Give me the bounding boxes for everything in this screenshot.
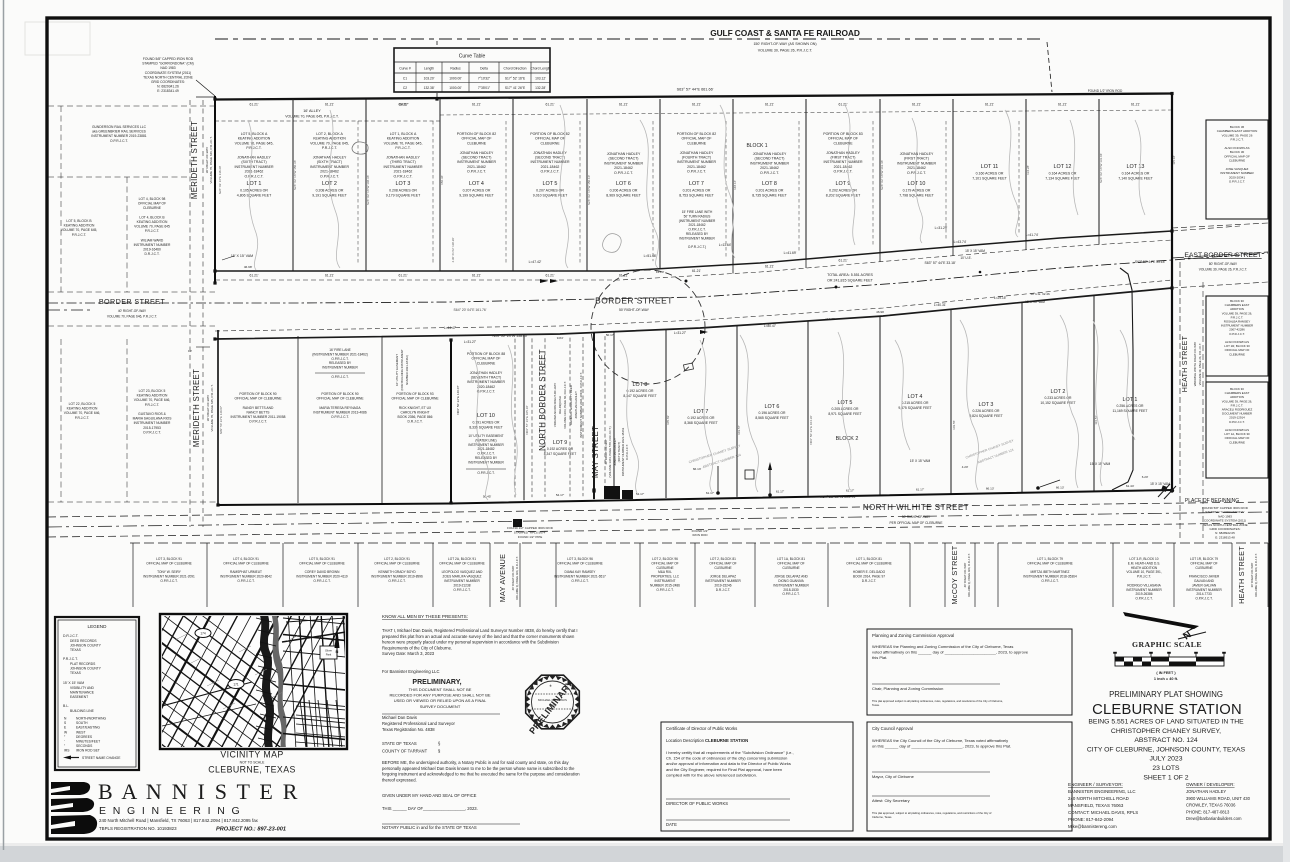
svg-text:2021-18462: 2021-18462: [467, 165, 486, 169]
svg-text:16' ALLEY: 16' ALLEY: [303, 109, 321, 113]
svg-text:(SECOND TRACT): (SECOND TRACT): [462, 156, 492, 160]
svg-text:10' UTILITY EASEMENT: 10' UTILITY EASEMENT: [468, 434, 503, 438]
svg-text:8,753 SQUARE FEET: 8,753 SQUARE FEET: [679, 194, 714, 198]
svg-text:LOT 1, BLOCK A: LOT 1, BLOCK A: [390, 132, 417, 136]
svg-text:Delta: Delta: [480, 67, 488, 71]
svg-text:E: 2318341.49: E: 2318341.49: [157, 89, 179, 93]
svg-text:INSTRUMENT NUMBER: INSTRUMENT NUMBER: [1126, 588, 1162, 592]
svg-text:GIVEN UNDER MY HAND AND SEAL O: GIVEN UNDER MY HAND AND SEAL OF OFFICE: [382, 793, 477, 798]
svg-text:GULF COAST & SANTA FE RAILROAD: GULF COAST & SANTA FE RAILROAD: [710, 28, 860, 38]
svg-text:CLEBURNE: CLEBURNE: [1229, 440, 1245, 444]
svg-text:LOT 2, BLOCK 81: LOT 2, BLOCK 81: [710, 557, 736, 561]
svg-text:LOT 5, BLOCK B: LOT 5, BLOCK B: [66, 219, 92, 223]
svg-text:O.P.R.J.C.T.: O.P.R.J.C.T.: [388, 579, 405, 583]
svg-text:2014-7733: 2014-7733: [1196, 592, 1211, 596]
svg-text:Curve Table: Curve Table: [459, 54, 486, 60]
svg-text:LOT 12: LOT 12: [1054, 164, 1072, 170]
svg-text:VISIBILITY AND: VISIBILITY AND: [70, 686, 95, 690]
svg-text:O.P.R.J.C.T.: O.P.R.J.C.T.: [249, 420, 267, 424]
svg-text:61.21': 61.21': [325, 103, 334, 107]
svg-text:Ch. 154 of the code of ordinan: Ch. 154 of the code of ordinances of the…: [666, 756, 787, 761]
svg-text:7°10'32": 7°10'32": [478, 77, 491, 81]
svg-text:0.201 ACRES OR: 0.201 ACRES OR: [683, 189, 711, 193]
svg-text:OR 241,815 SQUARE FEET: OR 241,815 SQUARE FEET: [827, 279, 874, 283]
svg-text:OFFICIAL MAP OF: OFFICIAL MAP OF: [651, 561, 678, 565]
svg-text:0.164 ACRES OR: 0.164 ACRES OR: [1049, 172, 1077, 176]
svg-text:LOT 23, BLOCK 5: LOT 23, BLOCK 5: [139, 389, 166, 393]
svg-text:8,971 SQUARE FEET: 8,971 SQUARE FEET: [828, 412, 861, 416]
svg-text:61.21': 61.21': [765, 103, 774, 107]
svg-text:O.P.R.J.C.T.: O.P.R.J.C.T.: [782, 592, 799, 596]
svg-text:(INSTRUMENT NUMBER 2021-18462): (INSTRUMENT NUMBER 2021-18462): [312, 352, 368, 356]
svg-text:O.P.R.J.C.T.: O.P.R.J.C.T.: [1229, 180, 1245, 184]
svg-text:JONATHAN HADLEY: JONATHAN HADLEY: [470, 371, 503, 375]
svg-text:Chord Direction: Chord Direction: [504, 67, 527, 71]
svg-text:Michael Dan Davis: Michael Dan Davis: [382, 715, 417, 720]
svg-text:9,191 SQUARE FEET: 9,191 SQUARE FEET: [312, 194, 347, 198]
svg-text:VOLUME 70, PAGE 646,: VOLUME 70, PAGE 646,: [134, 398, 171, 402]
svg-text:EAST/EASTING: EAST/EASTING: [76, 726, 100, 730]
svg-text:TEXAS: TEXAS: [70, 648, 82, 652]
svg-text:P.R.J.C.T.: P.R.J.C.T.: [322, 146, 338, 150]
svg-text:MIRTZA IBETH MARTINEZ: MIRTZA IBETH MARTINEZ: [1030, 570, 1069, 574]
svg-text:E: 2318913.48: E: 2318913.48: [1215, 535, 1235, 539]
svg-text:LOT 4, BLOCK 98: LOT 4, BLOCK 98: [139, 197, 166, 201]
svg-text:10' UTILITY EASEMENT: 10' UTILITY EASEMENT: [395, 354, 399, 386]
svg-text:61.21': 61.21': [472, 274, 481, 278]
svg-text:8,969 SQUARE FEET: 8,969 SQUARE FEET: [606, 194, 641, 198]
svg-text:50' RIGHT-OF-WAY: 50' RIGHT-OF-WAY: [902, 515, 931, 519]
svg-text:KNOW ALL MEN BY THESE PRESENTS: KNOW ALL MEN BY THESE PRESENTS:: [382, 614, 468, 619]
svg-text:4,806 SQUARE FEET: 4,806 SQUARE FEET: [237, 194, 272, 198]
svg-text:RAMSPHAT URMEUT: RAMSPHAT URMEUT: [230, 570, 262, 574]
svg-text:PROJECT NO.: 897-23-001: PROJECT NO.: 897-23-001: [216, 827, 286, 833]
svg-text:8,735 SQUARE FEET: 8,735 SQUARE FEET: [752, 194, 787, 198]
svg-text:RELEASED BY: RELEASED BY: [686, 232, 709, 236]
svg-text:JONATHAN HADLEY: JONATHAN HADLEY: [460, 151, 494, 155]
svg-text:0.192 ACRES OR: 0.192 ACRES OR: [627, 389, 655, 393]
svg-text:DIANA KAY RAMSEY: DIANA KAY RAMSEY: [565, 570, 597, 574]
svg-text:GUNDERSON RAIL SERVICES LLC: GUNDERSON RAIL SERVICES LLC: [92, 125, 147, 129]
svg-text:61.21': 61.21': [692, 103, 701, 107]
svg-text:LOT 10: LOT 10: [908, 181, 926, 187]
svg-text:hereon were properly placed un: hereon were properly placed under my per…: [382, 640, 559, 645]
svg-text:INSTRUMENT NUMBER: INSTRUMENT NUMBER: [444, 579, 480, 583]
svg-text:46.98': 46.98': [244, 265, 253, 269]
svg-text:61.21': 61.21': [619, 103, 628, 107]
svg-text:D.R.J.C.T.: D.R.J.C.T.: [716, 588, 731, 592]
svg-text:S63° 57' 44"E 33.18': S63° 57' 44"E 33.18': [1135, 260, 1166, 264]
svg-text:SHEET 1 OF 2: SHEET 1 OF 2: [1143, 774, 1188, 781]
svg-text:OFFICIAL MAP OF: OFFICIAL MAP OF: [535, 137, 565, 141]
svg-text:LEGEND: LEGEND: [88, 624, 108, 629]
svg-text:GALVAN AND: GALVAN AND: [1194, 579, 1215, 583]
svg-text:WHEREAS the City Council of th: WHEREAS the City Council of the City of …: [872, 738, 1008, 743]
svg-text:OFFICIAL MAP OF CLEBURNE: OFFICIAL MAP OF CLEBURNE: [223, 561, 269, 565]
svg-text:S17° 52' 16"E: S17° 52' 16"E: [505, 77, 526, 81]
svg-text:O.P.R.J.C.T.: O.P.R.J.C.T.: [331, 415, 349, 419]
svg-text:KEATING ADDITION: KEATING ADDITION: [387, 137, 420, 141]
svg-text:LOT 10: LOT 10: [477, 413, 495, 419]
svg-text:on this ______ day of ________: on this ______ day of __________________…: [872, 743, 1011, 748]
svg-text:FOUND 1/2" IRON ROD: FOUND 1/2" IRON ROD: [1088, 89, 1123, 93]
svg-text:LOT 5, BLOCK 91: LOT 5, BLOCK 91: [309, 557, 335, 561]
svg-text:2021-18462: 2021-18462: [907, 166, 926, 170]
svg-text:1000.00': 1000.00': [449, 77, 462, 81]
svg-text:S26° 02' 16"W 148.36': S26° 02' 16"W 148.36': [366, 175, 370, 205]
svg-text:PRELIMINARY,: PRELIMINARY,: [412, 679, 461, 686]
svg-text:S63° 57' 44"E 33.18': S63° 57' 44"E 33.18': [924, 261, 955, 265]
svg-text:NUMBER 2021-18462): NUMBER 2021-18462): [405, 355, 409, 385]
svg-text:Chord Length: Chord Length: [531, 67, 551, 71]
svg-text:TONY W. SEIRY: TONY W. SEIRY: [157, 570, 182, 574]
svg-text:D.R.J.C.T.: D.R.J.C.T.: [144, 252, 159, 256]
svg-text:L=31.27': L=31.27': [674, 331, 687, 335]
svg-text:P.R.J.C.T.: P.R.J.C.T.: [75, 416, 89, 420]
svg-text:9,199 SQUARE FEET: 9,199 SQUARE FEET: [459, 194, 494, 198]
svg-text:0.256 ACRES OR: 0.256 ACRES OR: [1117, 404, 1145, 408]
svg-text:SOUTH: SOUTH: [76, 721, 88, 725]
svg-text:S64° 20' 04"E 161.76': S64° 20' 04"E 161.76': [454, 308, 487, 312]
svg-text:2018-1530: 2018-1530: [783, 588, 798, 592]
svg-text:54.17': 54.17': [556, 493, 565, 497]
svg-text:DEED RECORDS: DEED RECORDS: [70, 639, 97, 643]
svg-text:S17° 41' 26"E: S17° 41' 26"E: [505, 86, 526, 90]
svg-text:O.P.R.J.C.T.: O.P.R.J.C.T.: [688, 228, 705, 232]
svg-text:Cleburne, Texas.: Cleburne, Texas.: [872, 815, 892, 819]
svg-text:THAT I, Michael Dan Davis, Reg: THAT I, Michael Dan Davis, Registered Pr…: [382, 628, 578, 633]
svg-text:BANNISTER ENGINEERING, LLC: BANNISTER ENGINEERING, LLC: [1068, 789, 1136, 794]
svg-text:P.R.J.C.T.: P.R.J.C.T.: [246, 146, 262, 150]
svg-text:LOT 11: LOT 11: [981, 164, 998, 170]
svg-text:GRID COORDINATES:: GRID COORDINATES:: [151, 80, 185, 84]
svg-text:LOT 4: LOT 4: [469, 181, 484, 187]
svg-text:O.P.R.J.C.T.: O.P.R.J.C.T.: [143, 430, 161, 434]
svg-text:RECORDED FOR ANY PURPOSE AND S: RECORDED FOR ANY PURPOSE AND SHALL NOT B…: [389, 693, 490, 698]
svg-text:M&A RXL: M&A RXL: [658, 570, 672, 574]
svg-text:WHEREAS the Planning and Zonin: WHEREAS the Planning and Zoning Commissi…: [872, 644, 1013, 649]
svg-text:LOT 8: LOT 8: [762, 181, 777, 187]
svg-text:OFFICIAL MAP OF CLEBURNE: OFFICIAL MAP OF CLEBURNE: [439, 561, 485, 565]
svg-text:PORTION OF BLOCK 82: PORTION OF BLOCK 82: [457, 132, 496, 136]
svg-text:2021-18462: 2021-18462: [760, 166, 779, 170]
svg-text:CLEBURNE: CLEBURNE: [1229, 352, 1245, 356]
svg-text:LOT 2, BLOCK A: LOT 2, BLOCK A: [316, 132, 343, 136]
svg-text:(SIXTH TRACT): (SIXTH TRACT): [241, 160, 266, 164]
svg-text:IRON ROD SET: IRON ROD SET: [76, 749, 100, 753]
svg-text:BORDER STREET: BORDER STREET: [595, 296, 673, 306]
svg-text:KEATING ADDITION: KEATING ADDITION: [137, 394, 168, 398]
svg-text:LOT 1, BLOCK 79: LOT 1, BLOCK 79: [1037, 557, 1063, 561]
svg-text:PHONE: 817-842-2094: PHONE: 817-842-2094: [1068, 817, 1114, 822]
svg-text:S63° 57' 44"E 661.66': S63° 57' 44"E 661.66': [677, 88, 714, 92]
svg-text:148.16': 148.16': [733, 180, 737, 190]
svg-text:Radius: Radius: [450, 67, 461, 71]
svg-text:O.P.R.J.C.T.: O.P.R.J.C.T.: [477, 471, 494, 475]
svg-text:JONATHAN HADLEY: JONATHAN HADLEY: [680, 151, 714, 155]
svg-text:61.21': 61.21': [839, 103, 848, 107]
svg-text:(SECOND TRACT): (SECOND TRACT): [609, 157, 639, 161]
svg-text:L=41.69': L=41.69': [784, 251, 797, 255]
svg-text:66.13': 66.13': [693, 467, 702, 471]
svg-text:Texas Registration No. 4838: Texas Registration No. 4838: [382, 727, 435, 732]
svg-text:O.P.R.J.C.T.: O.P.R.J.C.T.: [1135, 597, 1152, 601]
svg-text:COUNTY OF TARRANT: COUNTY OF TARRANT: [382, 749, 428, 754]
svg-text:PORTION OF BLOCK 83: PORTION OF BLOCK 83: [823, 132, 862, 136]
svg-text:(VOLUME 1363, PAGE 570, D.R.J.: (VOLUME 1363, PAGE 570, D.R.J.C.T.): [608, 426, 612, 477]
svg-text:P.R.J.C.T.: P.R.J.C.T.: [145, 403, 159, 407]
svg-text:INSTRUMENT: INSTRUMENT: [655, 579, 676, 583]
svg-text:6.20': 6.20': [1142, 475, 1149, 479]
svg-text:61.44': 61.44': [1126, 484, 1135, 488]
svg-text:2021-18462: 2021-18462: [688, 223, 705, 227]
svg-text:GENERAL WARRANTY DEED: GENERAL WARRANTY DEED: [569, 385, 573, 425]
svg-text:61.21': 61.21': [985, 103, 994, 107]
svg-text:City Council Approval: City Council Approval: [872, 726, 913, 731]
svg-text:O.P.R.J.C.T.: O.P.R.J.C.T.: [625, 444, 629, 460]
svg-text:9,824 SQUARE FEET: 9,824 SQUARE FEET: [969, 414, 1002, 418]
svg-text:N: N: [336, 649, 339, 654]
svg-text:LOT 4: LOT 4: [908, 394, 923, 400]
svg-text:INSTRUMENT NUMBER: INSTRUMENT NUMBER: [679, 236, 715, 240]
svg-text:9,010 SQUARE FEET: 9,010 SQUARE FEET: [533, 194, 568, 198]
svg-text:3900 WILLIAMS ROAD, UNIT 430: 3900 WILLIAMS ROAD, UNIT 430: [1186, 796, 1251, 801]
svg-text:INSTRUMENT NUMBER: INSTRUMENT NUMBER: [897, 161, 936, 165]
svg-text:LOT 4, BLOCK B: LOT 4, BLOCK B: [139, 215, 165, 219]
svg-text:2020-18462: 2020-18462: [477, 385, 495, 389]
svg-text:JONATHAN HADLEY: JONATHAN HADLEY: [237, 156, 271, 160]
svg-text:this Plat.: this Plat.: [872, 655, 887, 660]
svg-text:PORTION OF BLOCK 93: PORTION OF BLOCK 93: [396, 392, 433, 396]
svg-text:OFFICIAL MAP OF: OFFICIAL MAP OF: [828, 137, 858, 141]
svg-text:NORTH WILHITE STREET: NORTH WILHITE STREET: [863, 503, 969, 512]
svg-text:50.45': 50.45': [483, 494, 492, 498]
svg-text:INSTRUMENT NUMBER 2020-8642: INSTRUMENT NUMBER 2020-8642: [220, 575, 272, 579]
svg-text:INSTRUMENT NUMBER 2021-18461,: INSTRUMENT NUMBER 2021-18461, O.P.R.J.C.…: [579, 372, 583, 438]
svg-text:For Bannister Engineering LLC: For Bannister Engineering LLC: [382, 669, 440, 674]
svg-text:L=40.31': L=40.31': [934, 303, 947, 307]
svg-text:2021-18462: 2021-18462: [834, 165, 853, 169]
svg-text:Attest: City Secretary: Attest: City Secretary: [872, 798, 910, 803]
svg-text:INSTRUMENT NUMBER 2013-4086: INSTRUMENT NUMBER 2013-4086: [313, 410, 367, 414]
svg-text:HOMER E. DELGADO: HOMER E. DELGADO: [853, 570, 886, 574]
svg-text:STAMPED "RPLS 5674": STAMPED "RPLS 5674": [514, 530, 547, 534]
svg-text:8,565 SQUARE FEET: 8,565 SQUARE FEET: [755, 416, 788, 420]
svg-text:OFFICIAL MAP OF CLEBURNE: OFFICIAL MAP OF CLEBURNE: [146, 561, 192, 565]
svg-text:LOT 3-R, BLOCK 10: LOT 3-R, BLOCK 10: [1129, 557, 1158, 561]
svg-text:OFFICIAL MAP OF CLEBURNE: OFFICIAL MAP OF CLEBURNE: [1027, 561, 1073, 565]
svg-text:VOLUME 70, PAGE 646,: VOLUME 70, PAGE 646,: [64, 411, 101, 415]
svg-text:N09° 57' 16"E 105.18': N09° 57' 16"E 105.18': [525, 405, 529, 435]
svg-text:BEING 5.551 ACRES OF LAND SITU: BEING 5.551 ACRES OF LAND SITUATED IN TH…: [1088, 719, 1244, 726]
svg-text:0.205 ACRES OR: 0.205 ACRES OR: [832, 407, 860, 411]
svg-text:4.30' 61.52' 138.20': 4.30' 61.52' 138.20': [451, 237, 455, 262]
svg-text:61.17': 61.17': [776, 490, 785, 494]
svg-text:JONATHAN HADLEY: JONATHAN HADLEY: [607, 152, 641, 156]
svg-text:2021-18462: 2021-18462: [614, 166, 633, 170]
svg-text:(INSTRUMENT NUMBER: (INSTRUMENT NUMBER: [679, 219, 716, 223]
svg-text:TEXAS NORTH CENTRAL ZONE: TEXAS NORTH CENTRAL ZONE: [143, 75, 193, 79]
svg-text:LOT 4, BLOCK 91: LOT 4, BLOCK 91: [233, 557, 259, 561]
svg-text:Curve #: Curve #: [399, 67, 411, 71]
svg-text:FRANCISCO JAVIER: FRANCISCO JAVIER: [1189, 575, 1220, 579]
svg-text:and/or approval of information: and/or approval of information and data …: [666, 761, 791, 766]
svg-text:240 North Mitchell Road | Man: 240 North Mitchell Road | Mansfield, TX …: [99, 818, 259, 823]
svg-text:PORTION OF BLOCK 90: PORTION OF BLOCK 90: [321, 392, 358, 396]
svg-text:DEGREES: DEGREES: [76, 735, 93, 739]
svg-text:N26° 02' 16"E 138.20': N26° 02' 16"E 138.20': [218, 165, 222, 194]
svg-text:LOT 2: LOT 2: [1051, 389, 1066, 395]
svg-text:D.R.J.C.T.: D.R.J.C.T.: [862, 579, 877, 583]
svg-text:INSTRUMENT NUMBER: INSTRUMENT NUMBER: [134, 243, 171, 247]
svg-text:FOUND 1/2" CAPPED IRON ROD: FOUND 1/2" CAPPED IRON ROD: [507, 526, 554, 530]
svg-text:L=29.15': L=29.15': [994, 296, 1007, 300]
svg-text:CLEBURNE: CLEBURNE: [687, 141, 707, 145]
svg-text:LOT 7: LOT 7: [689, 181, 704, 187]
svg-text:LOT 8: LOT 8: [633, 382, 648, 388]
svg-text:LOT 1, BLOCK 81: LOT 1, BLOCK 81: [856, 557, 882, 561]
svg-text:HEATH STREET: HEATH STREET: [1182, 335, 1189, 392]
svg-text:VIRGINIA NIXON RIGHT-OF-WAY: VIRGINIA NIXON RIGHT-OF-WAY: [553, 383, 557, 427]
svg-text:INSTRUMENT NUMBER: INSTRUMENT NUMBER: [823, 160, 862, 164]
svg-text:LOT 1: LOT 1: [247, 181, 262, 187]
svg-text:NAD 1983: NAD 1983: [160, 66, 175, 70]
svg-text:VOLUME 1363, PAGE 60, D.R.J.C.: VOLUME 1363, PAGE 60, D.R.J.C.T.: [563, 381, 567, 429]
svg-text:WILIAM WARD: WILIAM WARD: [141, 238, 164, 242]
svg-text:Survey Date: March 3, 2023: Survey Date: March 3, 2023: [382, 651, 435, 656]
svg-text:S26° 02' 16"W 150.36': S26° 02' 16"W 150.36': [293, 160, 297, 190]
svg-text:CLEBURNE: CLEBURNE: [833, 141, 853, 145]
svg-text:O.P.R.J.C.T.: O.P.R.J.C.T.: [614, 171, 633, 175]
svg-text:LOT 3: LOT 3: [396, 181, 411, 187]
svg-text:CLEBURNE: CLEBURNE: [467, 141, 487, 145]
svg-text:O.P.R.J.C.T.: O.P.R.J.C.T.: [394, 174, 413, 178]
svg-text:LOT 1: LOT 1: [1123, 397, 1138, 403]
svg-text:(FOURTH TRACT): (FOURTH TRACT): [682, 156, 711, 160]
svg-text:Planning and Zoning Commission: Planning and Zoning Commission Approval: [872, 633, 954, 638]
svg-text:O.P.R.J.C.T.: O.P.R.J.C.T.: [541, 170, 560, 174]
svg-text:0.207 ACRES OR: 0.207 ACRES OR: [463, 189, 491, 193]
svg-text:NANCY BETTS: NANCY BETTS: [246, 410, 270, 414]
svg-text:O.P.R.J.C.T.: O.P.R.J.C.T.: [160, 579, 177, 583]
svg-text:BUILDING LINE: BUILDING LINE: [70, 709, 95, 713]
svg-text:JONATHAN HADLEY: JONATHAN HADLEY: [313, 156, 347, 160]
svg-text:2021-18462: 2021-18462: [394, 170, 413, 174]
svg-text:10,152 SQUARE FEET: 10,152 SQUARE FEET: [1040, 401, 1075, 405]
svg-text:(SIXTH TRACT): (SIXTH TRACT): [317, 160, 342, 164]
svg-text:O.P.R.J.C.T.: O.P.R.J.C.T.: [331, 357, 348, 361]
svg-text:MARIA TERESA REYNAGA: MARIA TERESA REYNAGA: [319, 406, 361, 410]
svg-text:LOT 2A, BLOCK 91: LOT 2A, BLOCK 91: [448, 557, 476, 561]
svg-text:(FIRST TRACT): (FIRST TRACT): [831, 156, 856, 160]
svg-text:ENGINEER / SURVEYOR:: ENGINEER / SURVEYOR:: [1068, 782, 1123, 787]
svg-text:NORTH BORDER STREET: NORTH BORDER STREET: [538, 349, 547, 451]
svg-text:0.201 ACRES OR: 0.201 ACRES OR: [756, 189, 784, 193]
svg-text:LOT 6: LOT 6: [765, 404, 780, 410]
svg-text:OFFICIAL MAP OF CLEBURNE: OFFICIAL MAP OF CLEBURNE: [846, 561, 892, 565]
svg-text:VOLUME 70, PAGE 645,: VOLUME 70, PAGE 645,: [61, 228, 98, 232]
svg-text:103.20': 103.20': [424, 77, 435, 81]
svg-text:105.82': 105.82': [666, 415, 670, 425]
svg-text:D.R.J.C.T.: D.R.J.C.T.: [63, 634, 79, 638]
svg-text:61.21': 61.21': [765, 265, 774, 269]
svg-text:CLEBURNE: CLEBURNE: [1229, 159, 1245, 163]
svg-text:Drew@barbarianbuilders.com: Drew@barbarianbuilders.com: [1186, 816, 1242, 821]
svg-text:0.192 ACRES OR: 0.192 ACRES OR: [547, 447, 574, 451]
svg-text:Park: Park: [326, 653, 332, 657]
svg-text:8,335 SQUARE FEET: 8,335 SQUARE FEET: [469, 426, 502, 430]
svg-text:103.12': 103.12': [535, 77, 546, 81]
svg-text:134.28': 134.28': [1026, 165, 1030, 175]
svg-text:O.P.R.J.C.T.: O.P.R.J.C.T.: [453, 588, 470, 592]
svg-text:50' RIGHT-OF-WAY: 50' RIGHT-OF-WAY: [619, 308, 650, 312]
svg-text:MERIDETH STREET: MERIDETH STREET: [192, 369, 201, 447]
svg-text:O.P.R.J.C.T.: O.P.R.J.C.T.: [331, 375, 348, 379]
svg-text:132.38': 132.38': [424, 86, 435, 90]
svg-text:LOT 22, BLOCK 5: LOT 22, BLOCK 5: [69, 402, 96, 406]
svg-text:THIS ______ DAY OF____________: THIS ______ DAY OF__________________, 20…: [382, 806, 478, 811]
svg-text:LOT 3, BLOCK 96: LOT 3, BLOCK 96: [567, 557, 593, 561]
svg-text:KENNETH GRADY BOYD: KENNETH GRADY BOYD: [378, 570, 416, 574]
svg-text:FOUND 5/8" CAPPED IRON ROD: FOUND 5/8" CAPPED IRON ROD: [143, 57, 194, 61]
svg-text:VOLUME 39, PAGE 26, P.R.J.C.T.: VOLUME 39, PAGE 26, P.R.J.C.T.: [1199, 268, 1248, 272]
svg-text:Texas.: Texas.: [872, 703, 880, 707]
svg-text:INSTRUMENT NUMBER: INSTRUMENT NUMBER: [467, 380, 505, 384]
svg-text:STREET NAME CHANGE: STREET NAME CHANGE: [82, 756, 121, 760]
svg-text:personally appeared Michael Da: personally appeared Michael Dan Davis kn…: [382, 766, 575, 771]
svg-text:McCOY STREET: McCOY STREET: [950, 545, 959, 604]
svg-text:15' X 15' VAM: 15' X 15' VAM: [1150, 482, 1170, 486]
svg-text:GUSTAVO RIOS &: GUSTAVO RIOS &: [138, 412, 167, 416]
svg-text:RELEASED BY: RELEASED BY: [475, 456, 498, 460]
svg-text:O.P.R.J.C.T.: O.P.R.J.C.T.: [245, 174, 264, 178]
svg-text:61.17': 61.17': [916, 487, 925, 491]
svg-text:LEOPOLDO VASQUEZ AND: LEOPOLDO VASQUEZ AND: [442, 570, 484, 574]
svg-text:EAST BORDER STREET: EAST BORDER STREET: [1184, 252, 1261, 259]
svg-text:CITY OF CLEBURNE, JOHNSON COUN: CITY OF CLEBURNE, JOHNSON COUNTY, TEXAS: [1087, 746, 1246, 753]
svg-text:JONATHAN HADLEY: JONATHAN HADLEY: [1186, 789, 1226, 794]
svg-text:OFFICIAL MAP OF: OFFICIAL MAP OF: [709, 561, 736, 565]
svg-text:TBPLS REGISTRATION NO. 1019382: TBPLS REGISTRATION NO. 10193823: [99, 826, 177, 831]
svg-text:KEATING ADDITION: KEATING ADDITION: [67, 407, 98, 411]
svg-text:OFFICIAL MAP OF: OFFICIAL MAP OF: [1190, 561, 1217, 565]
svg-text:INSTRUMENT NUMBER 2018-35364: INSTRUMENT NUMBER 2018-35364: [1023, 575, 1077, 579]
svg-text:L=51.46': L=51.46': [644, 254, 657, 258]
svg-text:11,169 SQUARE FEET: 11,169 SQUARE FEET: [1113, 409, 1148, 413]
svg-text:O.P.R.J.C.T.: O.P.R.J.C.T.: [477, 452, 494, 456]
svg-text:10' U.E.: 10' U.E.: [960, 256, 971, 260]
svg-text:CLEBURNE: CLEBURNE: [714, 566, 731, 570]
svg-text:KEATING ADDITION: KEATING ADDITION: [137, 220, 168, 224]
svg-text:INSTRUMENT NUMBER 2021-2091: INSTRUMENT NUMBER 2021-2091: [143, 575, 195, 579]
svg-text:RELINQUISH: RELINQUISH: [558, 396, 562, 414]
svg-text:JOHNSON COUNTY: JOHNSON COUNTY: [70, 644, 102, 648]
svg-text:L=31.29': L=31.29': [935, 226, 948, 230]
svg-text:61.21': 61.21': [399, 103, 408, 107]
svg-text:PLACE OF BEGINNING: PLACE OF BEGINNING: [1185, 498, 1239, 504]
svg-text:61.21': 61.21': [250, 103, 259, 107]
svg-text:Requirements of the City of Cl: Requirements of the City of Cleburne.: [382, 645, 452, 650]
svg-text:VICINITY MAP: VICINITY MAP: [220, 750, 283, 760]
svg-text:1000.00': 1000.00': [449, 86, 462, 90]
svg-text:15' X 15' VAM: 15' X 15' VAM: [231, 254, 253, 258]
svg-text:IRON ROD: IRON ROD: [693, 533, 709, 537]
svg-text:LOT 9: LOT 9: [553, 440, 567, 446]
svg-text:P.R.J.C.T.: P.R.J.C.T.: [1137, 575, 1151, 579]
svg-text:PORTION OF BLOCK 82: PORTION OF BLOCK 82: [677, 132, 716, 136]
svg-text:STATE OF TEXAS: STATE OF TEXAS: [382, 741, 417, 746]
svg-text:171: 171: [233, 683, 239, 687]
